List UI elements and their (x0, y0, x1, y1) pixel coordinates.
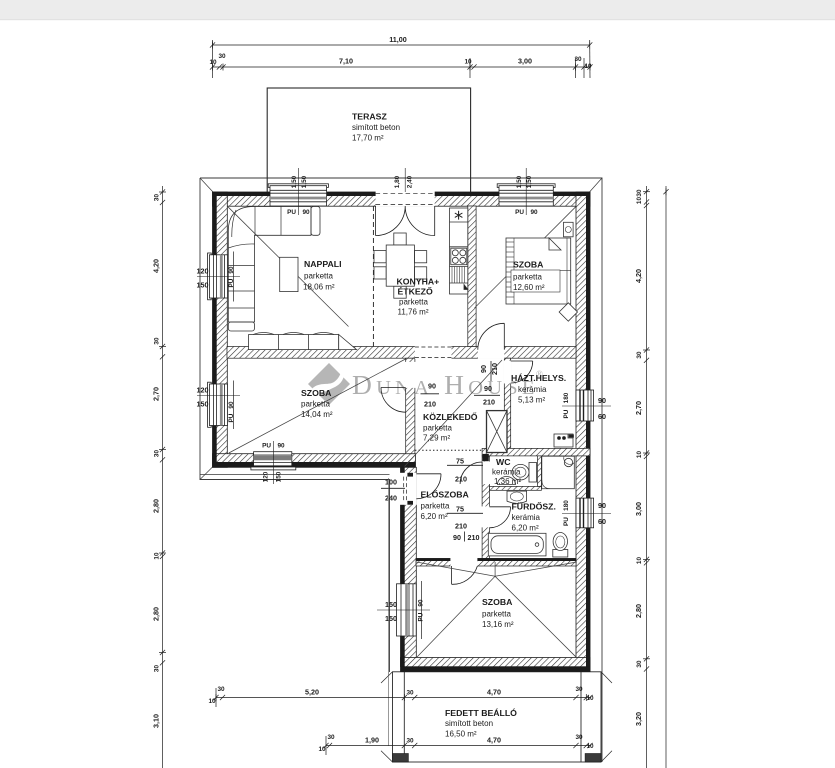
svg-text:12,60 m²: 12,60 m² (513, 283, 545, 292)
svg-text:kerámia: kerámia (518, 385, 547, 394)
svg-text:90: 90 (418, 599, 425, 607)
svg-text:100: 100 (385, 478, 397, 487)
svg-text:14,04 m²: 14,04 m² (301, 410, 333, 419)
svg-text:1,36 m²: 1,36 m² (494, 477, 521, 486)
svg-text:6,20 m²: 6,20 m² (512, 524, 539, 533)
svg-text:4,20: 4,20 (634, 269, 643, 283)
svg-text:7,10: 7,10 (339, 57, 353, 66)
svg-text:30: 30 (636, 660, 643, 668)
svg-text:4,70: 4,70 (487, 688, 501, 697)
svg-text:3,00: 3,00 (518, 57, 532, 66)
svg-text:30: 30 (154, 194, 161, 202)
svg-text:SZOBA: SZOBA (513, 260, 544, 270)
svg-text:30: 30 (575, 686, 583, 693)
svg-text:13,16 m²: 13,16 m² (482, 620, 514, 629)
svg-text:120: 120 (197, 267, 209, 276)
svg-text:210: 210 (455, 475, 467, 484)
svg-text:1,50: 1,50 (516, 175, 523, 188)
svg-text:150: 150 (197, 281, 209, 290)
svg-text:NAPPALI: NAPPALI (304, 259, 342, 269)
svg-text:PU: PU (228, 278, 235, 287)
svg-text:kerámia: kerámia (512, 513, 541, 522)
svg-text:FEDETT BEÁLLÓ: FEDETT BEÁLLÓ (445, 707, 517, 718)
svg-text:10: 10 (586, 743, 594, 750)
svg-text:30: 30 (154, 665, 161, 673)
svg-text:30: 30 (217, 686, 225, 693)
svg-text:1,50: 1,50 (301, 175, 308, 188)
svg-text:KÖZLEKEDŐ: KÖZLEKEDŐ (423, 411, 478, 422)
svg-text:parketta: parketta (301, 400, 330, 409)
svg-text:90: 90 (228, 401, 235, 409)
svg-text:ÉTKEZŐ: ÉTKEZŐ (398, 286, 433, 297)
svg-text:KONYHA+: KONYHA+ (397, 277, 440, 287)
svg-text:180: 180 (563, 500, 570, 511)
svg-text:2,70: 2,70 (152, 387, 161, 401)
svg-text:2,40: 2,40 (406, 175, 413, 188)
svg-text:5,20: 5,20 (305, 688, 319, 697)
svg-text:120: 120 (197, 386, 209, 395)
svg-text:PU: PU (287, 209, 296, 216)
svg-text:parketta: parketta (399, 298, 428, 307)
svg-text:parketta: parketta (304, 272, 333, 281)
svg-text:60: 60 (598, 517, 606, 526)
svg-text:90: 90 (484, 384, 492, 393)
svg-text:90: 90 (598, 501, 606, 510)
svg-text:90: 90 (303, 209, 311, 216)
svg-text:150: 150 (197, 400, 209, 409)
svg-text:1,90: 1,90 (365, 736, 379, 745)
svg-text:1,80: 1,80 (394, 175, 401, 188)
svg-text:10: 10 (208, 698, 216, 705)
svg-text:11,76 m²: 11,76 m² (398, 308, 429, 317)
svg-text:18,06 m²: 18,06 m² (303, 283, 335, 292)
svg-text:1,50: 1,50 (291, 175, 298, 188)
svg-text:HÁZT.HELYS.: HÁZT.HELYS. (511, 373, 566, 383)
svg-text:10: 10 (464, 59, 472, 66)
svg-text:simított beton: simított beton (352, 123, 400, 132)
svg-text:17,70 m²: 17,70 m² (352, 134, 384, 143)
svg-text:SZOBA: SZOBA (482, 597, 513, 607)
svg-text:parketta: parketta (482, 610, 511, 619)
svg-text:6,20 m²: 6,20 m² (421, 512, 448, 521)
svg-text:3,20: 3,20 (634, 712, 643, 726)
svg-text:11,00: 11,00 (389, 35, 407, 44)
svg-text:90: 90 (428, 382, 436, 391)
svg-text:90: 90 (479, 365, 488, 373)
svg-text:240: 240 (385, 494, 397, 503)
svg-text:90: 90 (278, 443, 286, 450)
svg-text:2,80: 2,80 (634, 604, 643, 618)
svg-text:parketta: parketta (421, 502, 450, 511)
svg-text:FÜRDŐSZ.: FÜRDŐSZ. (512, 501, 556, 512)
svg-text:PU: PU (563, 409, 570, 418)
svg-text:3,10: 3,10 (152, 714, 161, 728)
svg-text:1,50: 1,50 (526, 175, 533, 188)
svg-text:simított beton: simított beton (445, 719, 493, 728)
svg-text:TERASZ: TERASZ (352, 112, 387, 122)
svg-text:3,00: 3,00 (634, 502, 643, 516)
svg-text:210: 210 (424, 400, 436, 409)
svg-text:5,13 m²: 5,13 m² (518, 396, 545, 405)
svg-text:90: 90 (598, 396, 606, 405)
svg-text:PU: PU (418, 612, 425, 621)
svg-text:7,29 m²: 7,29 m² (423, 434, 450, 443)
svg-text:10: 10 (584, 63, 592, 70)
svg-text:210: 210 (455, 522, 467, 531)
svg-text:210: 210 (490, 363, 499, 375)
svg-text:10: 10 (154, 552, 161, 560)
svg-text:30: 30 (154, 450, 161, 458)
svg-text:10: 10 (209, 59, 217, 66)
svg-text:75: 75 (456, 505, 464, 514)
svg-text:180: 180 (563, 392, 570, 403)
svg-text:150: 150 (276, 471, 283, 482)
svg-text:30: 30 (636, 351, 643, 359)
svg-text:2,80: 2,80 (152, 607, 161, 621)
svg-text:16,50 m²: 16,50 m² (445, 730, 477, 739)
svg-text:75: 75 (456, 457, 464, 466)
svg-text:30: 30 (327, 734, 335, 741)
svg-text:ELŐSZOBA: ELŐSZOBA (421, 489, 470, 500)
svg-text:30: 30 (406, 690, 414, 697)
svg-text:10: 10 (636, 197, 643, 205)
svg-text:30: 30 (406, 738, 414, 745)
svg-text:PU: PU (563, 517, 570, 526)
svg-text:4,20: 4,20 (152, 259, 161, 273)
svg-text:2,70: 2,70 (634, 401, 643, 415)
svg-text:SZOBA: SZOBA (301, 388, 332, 398)
svg-text:90: 90 (531, 209, 539, 216)
svg-text:2,80: 2,80 (152, 499, 161, 513)
svg-text:parketta: parketta (423, 424, 452, 433)
svg-text:60: 60 (598, 412, 606, 421)
svg-text:30: 30 (574, 56, 582, 63)
svg-text:PU: PU (228, 413, 235, 422)
svg-text:10: 10 (636, 557, 643, 565)
svg-text:10: 10 (636, 451, 643, 459)
svg-text:210: 210 (483, 398, 495, 407)
svg-text:150: 150 (385, 614, 397, 623)
svg-text:4,70: 4,70 (487, 736, 501, 745)
svg-text:30: 30 (154, 337, 161, 345)
svg-text:30: 30 (636, 189, 643, 197)
svg-text:10: 10 (586, 695, 594, 702)
svg-text:120: 120 (263, 471, 270, 482)
svg-text:WC: WC (496, 457, 511, 467)
svg-text:210: 210 (468, 533, 480, 542)
svg-text:parketta: parketta (513, 273, 542, 282)
svg-text:90: 90 (453, 533, 461, 542)
svg-text:90: 90 (228, 266, 235, 274)
svg-text:PU: PU (515, 209, 524, 216)
svg-text:PU: PU (262, 443, 271, 450)
svg-text:10: 10 (318, 746, 326, 753)
svg-text:30: 30 (218, 53, 226, 60)
svg-text:150: 150 (385, 600, 397, 609)
svg-text:kerámia: kerámia (492, 468, 521, 477)
svg-text:30: 30 (575, 734, 583, 741)
